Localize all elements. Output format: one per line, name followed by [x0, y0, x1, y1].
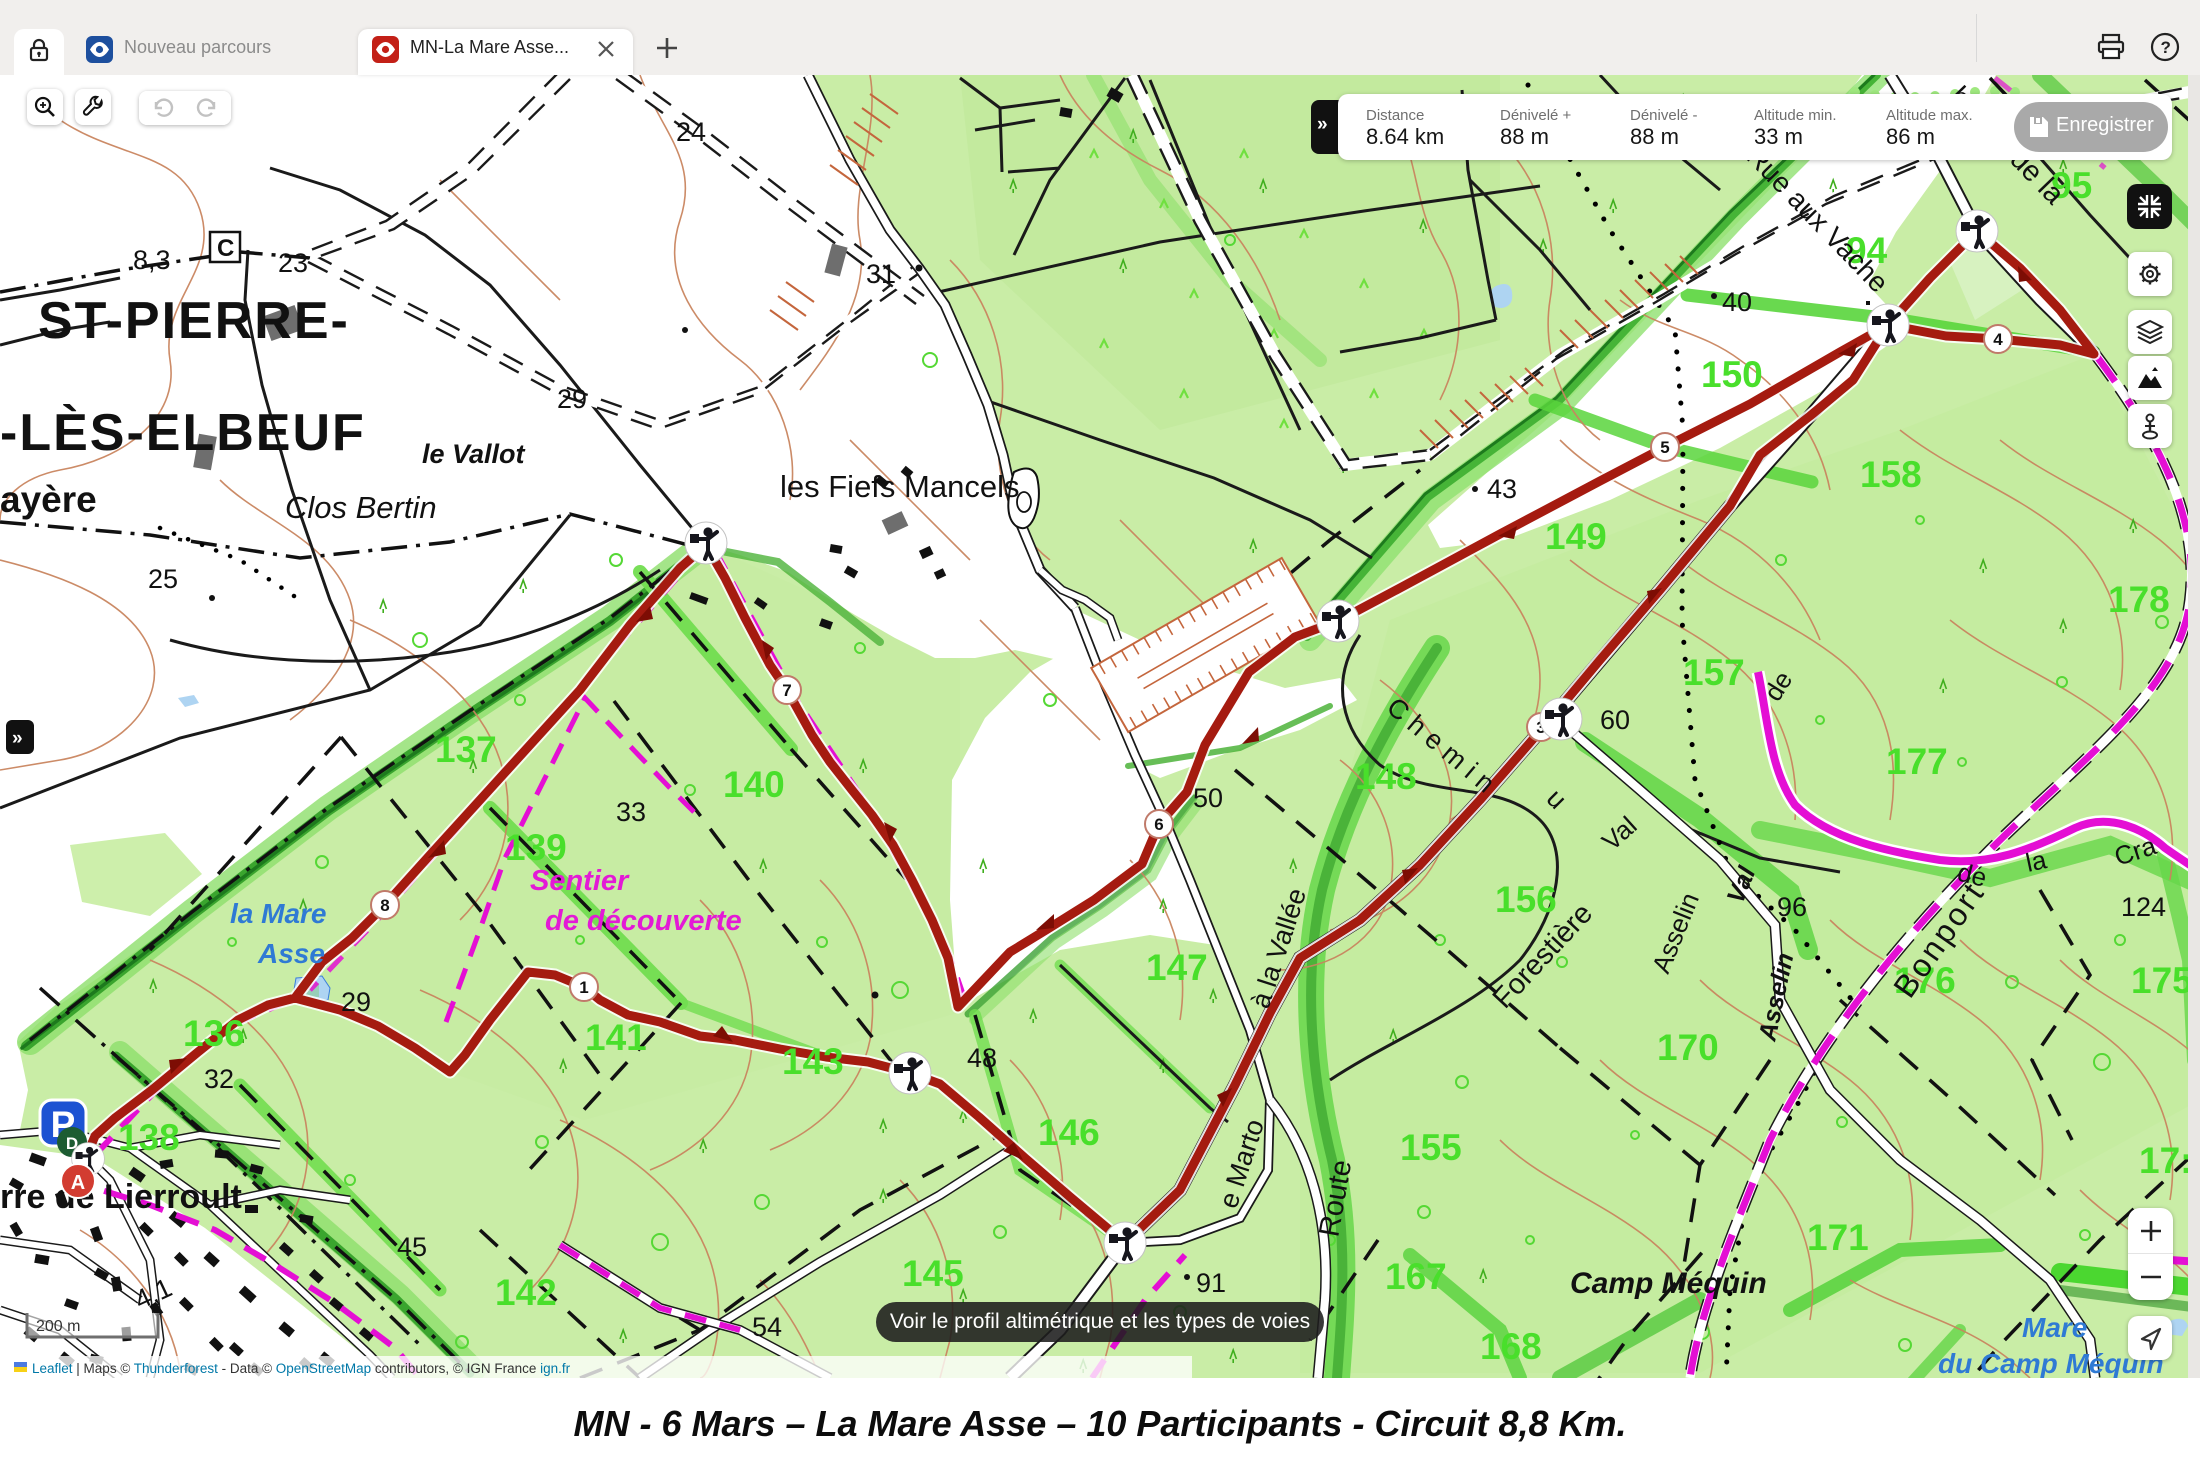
svg-text:31: 31	[866, 259, 896, 289]
svg-text:Clos Bertin: Clos Bertin	[285, 490, 437, 525]
svg-text:136: 136	[183, 1013, 245, 1054]
svg-text:137: 137	[435, 729, 497, 770]
svg-text:4: 4	[1993, 330, 2003, 349]
svg-text:24: 24	[676, 117, 706, 147]
svg-text:8,3: 8,3	[133, 245, 171, 275]
svg-text:7: 7	[782, 681, 791, 700]
svg-text:155: 155	[1400, 1127, 1462, 1168]
svg-text:les Fiefs Mancels: les Fiefs Mancels	[780, 469, 1019, 504]
svg-text:140: 140	[723, 764, 785, 805]
svg-text:167: 167	[1385, 1256, 1447, 1297]
svg-text:Mare: Mare	[2022, 1312, 2087, 1343]
svg-text:de découverte: de découverte	[545, 905, 742, 937]
svg-text:145: 145	[902, 1253, 964, 1294]
svg-text:17:: 17:	[2139, 1140, 2192, 1181]
svg-text:32: 32	[204, 1064, 234, 1094]
svg-text:1: 1	[579, 978, 588, 997]
svg-text:150: 150	[1701, 354, 1763, 395]
svg-text:A: A	[71, 1172, 85, 1194]
svg-text:Asse: Asse	[257, 938, 325, 969]
svg-text:48: 48	[967, 1043, 997, 1073]
svg-text:168: 168	[1480, 1326, 1542, 1367]
svg-text:170: 170	[1657, 1027, 1719, 1068]
svg-text:50: 50	[1193, 783, 1223, 813]
svg-text:60: 60	[1600, 705, 1630, 735]
svg-text:91: 91	[1196, 1268, 1226, 1298]
svg-text:149: 149	[1545, 516, 1607, 557]
svg-text:ST-PIERRE-: ST-PIERRE-	[38, 292, 350, 350]
svg-text:96: 96	[1777, 892, 1807, 922]
svg-text:8: 8	[380, 896, 389, 915]
svg-text:29: 29	[557, 384, 587, 414]
svg-text:146: 146	[1038, 1112, 1100, 1153]
svg-text:Sentier: Sentier	[530, 865, 630, 897]
svg-text:?: ?	[2161, 38, 2171, 57]
svg-text:40: 40	[1722, 287, 1752, 317]
svg-text:-LÈS-ELBEUF: -LÈS-ELBEUF	[0, 404, 366, 462]
svg-text:5: 5	[1660, 438, 1669, 457]
svg-text:33: 33	[616, 797, 646, 827]
svg-text:171: 171	[1807, 1217, 1869, 1258]
svg-text:148: 148	[1355, 756, 1417, 797]
svg-text:178: 178	[2108, 579, 2170, 620]
svg-text:la Mare: la Mare	[230, 898, 327, 929]
svg-text:23: 23	[278, 248, 308, 278]
svg-text:142: 142	[495, 1272, 557, 1313]
svg-text:rre de Lierroult: rre de Lierroult	[0, 1178, 242, 1216]
svg-text:Leaflet | Maps © Thunderforest: Leaflet | Maps © Thunderforest - Data © …	[32, 1361, 571, 1376]
svg-text:157: 157	[1683, 652, 1745, 693]
svg-text:139: 139	[505, 827, 567, 868]
svg-text:25: 25	[148, 564, 178, 594]
svg-text:C: C	[217, 235, 234, 262]
svg-text:147: 147	[1146, 947, 1208, 988]
svg-text:45: 45	[397, 1232, 427, 1262]
svg-text:54: 54	[752, 1312, 782, 1342]
svg-text:175: 175	[2131, 960, 2193, 1001]
svg-text:»: »	[12, 728, 23, 749]
svg-text:141: 141	[585, 1017, 647, 1058]
svg-text:177: 177	[1886, 741, 1948, 782]
svg-text:ayère: ayère	[0, 479, 97, 520]
svg-text:29: 29	[341, 987, 371, 1017]
svg-text:156: 156	[1495, 879, 1557, 920]
svg-text:43: 43	[1487, 474, 1517, 504]
svg-text:Camp Méquin: Camp Méquin	[1570, 1267, 1767, 1300]
svg-text:6: 6	[1154, 815, 1163, 834]
svg-text:138: 138	[118, 1117, 180, 1158]
svg-text:124: 124	[2121, 892, 2166, 922]
svg-text:143: 143	[782, 1041, 844, 1082]
svg-text:le Vallot: le Vallot	[422, 439, 526, 469]
svg-text:200 m: 200 m	[36, 1318, 80, 1335]
svg-text:158: 158	[1860, 454, 1922, 495]
